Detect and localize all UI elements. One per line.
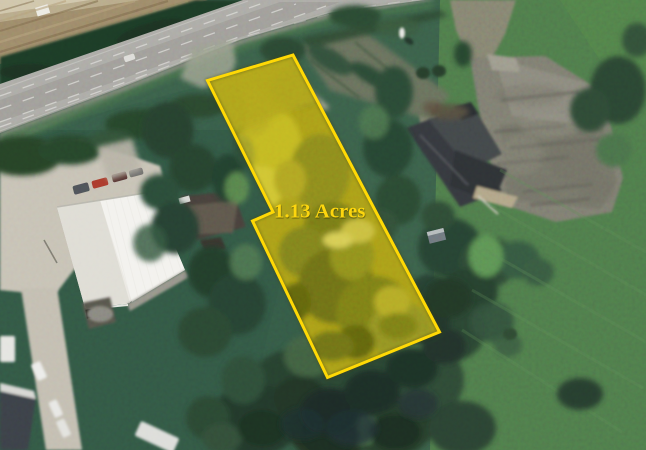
- svg-text:1.13 Acres: 1.13 Acres: [274, 201, 366, 223]
